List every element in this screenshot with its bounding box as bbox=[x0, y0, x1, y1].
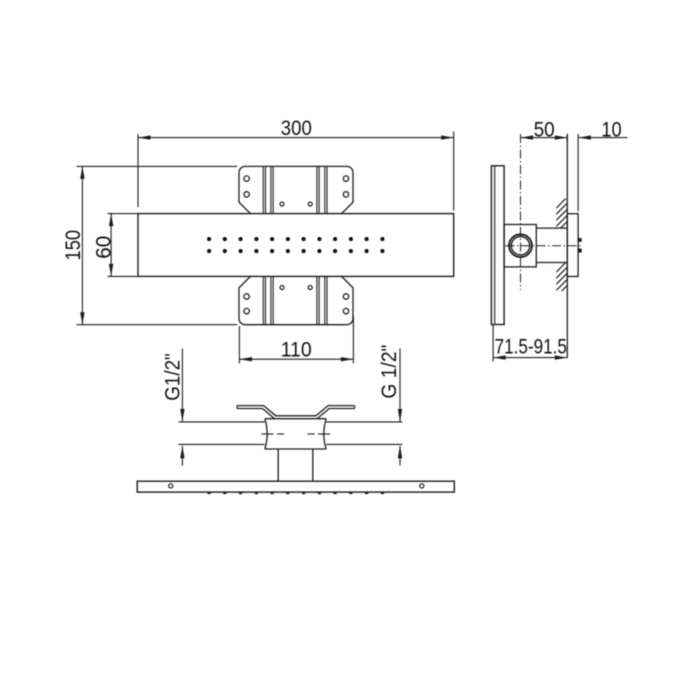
svg-text:G1/2": G1/2" bbox=[161, 353, 185, 401]
svg-text:71.5-91.5: 71.5-91.5 bbox=[495, 334, 567, 358]
svg-text:110: 110 bbox=[281, 337, 312, 361]
svg-text:50: 50 bbox=[534, 118, 555, 142]
svg-text:60: 60 bbox=[92, 236, 116, 259]
svg-text:10: 10 bbox=[601, 118, 621, 142]
svg-text:G 1/2": G 1/2" bbox=[377, 345, 401, 399]
svg-text:300: 300 bbox=[281, 116, 312, 140]
svg-text:150: 150 bbox=[61, 230, 85, 261]
